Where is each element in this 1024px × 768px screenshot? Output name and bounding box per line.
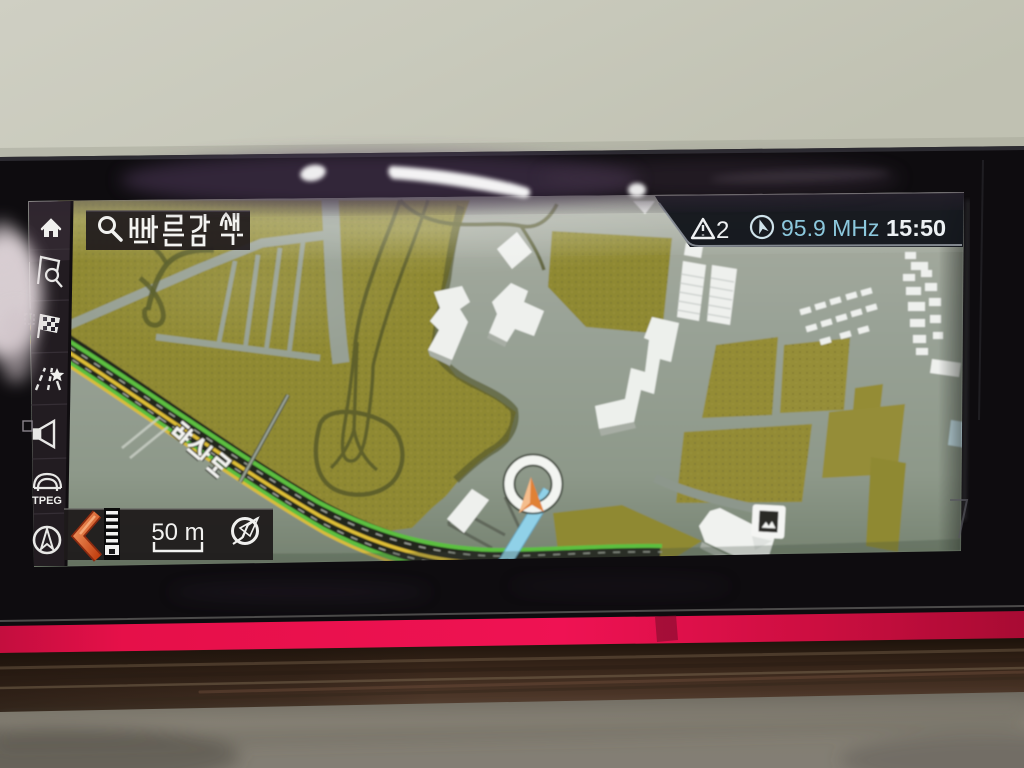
svg-text:50 m: 50 m (151, 519, 204, 546)
svg-text:2: 2 (716, 217, 729, 244)
svg-text:TPEG: TPEG (32, 495, 62, 507)
svg-text:15:50: 15:50 (886, 215, 946, 241)
svg-text:95.9 MHz: 95.9 MHz (781, 215, 879, 241)
